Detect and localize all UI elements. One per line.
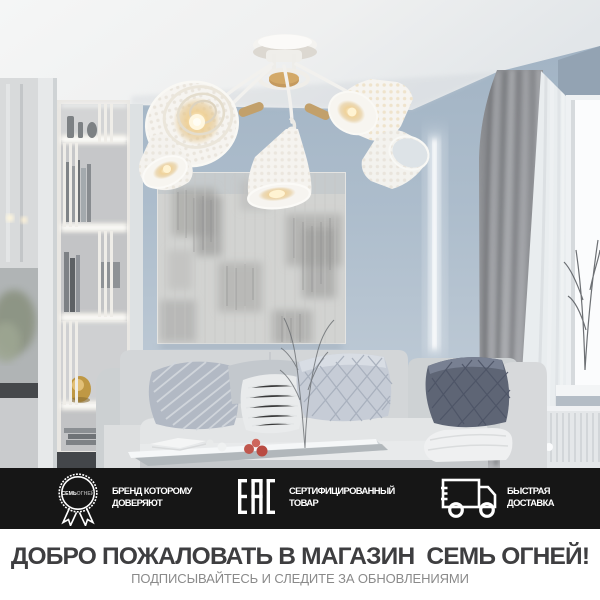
svg-text:СЕМЬОГНЕЙ: СЕМЬОГНЕЙ (61, 489, 94, 497)
